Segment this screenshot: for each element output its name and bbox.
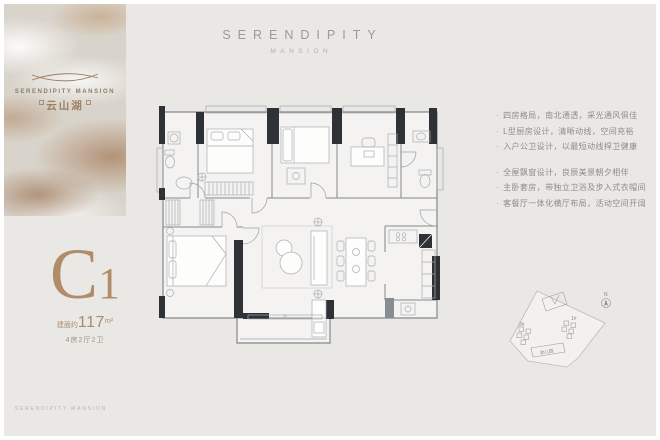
- bullet-icon: ·: [496, 183, 499, 192]
- feature-item: ·客餐厅一体化横厅布局，活动空间开阔: [496, 196, 656, 212]
- unit-code: C1: [14, 238, 156, 310]
- unit-code-main: C: [50, 234, 98, 314]
- bullet-icon: ·: [496, 168, 499, 177]
- seal-mark-icon: [39, 100, 44, 105]
- marble-brand-panel: SERENDIPITY MANSION 云山湖: [4, 4, 126, 216]
- unit-rooms: 4房2厅2卫: [14, 335, 156, 345]
- brand-block: SERENDIPITY MANSION 云山湖: [4, 70, 126, 113]
- feature-item: ·主卧套房，带独立卫浴及步入式衣帽间: [496, 180, 656, 196]
- header-subtitle: MANSION: [168, 48, 430, 55]
- seal-mark-icon: [86, 100, 91, 105]
- unit-area: 建面约117m²: [14, 314, 156, 332]
- feature-text: L型厨房设计，清晰动线，空间充裕: [503, 127, 634, 136]
- brand-title-cn: 云山湖: [4, 98, 126, 113]
- unit-info: C1 建面约117m² 4房2厅2卫: [14, 238, 156, 345]
- feature-item: ·四房格局，南北通透，采光通风俱佳: [496, 108, 656, 124]
- feature-text: 客餐厅一体化横厅布局，活动空间开阔: [503, 199, 646, 208]
- bullet-icon: ·: [496, 142, 499, 151]
- feature-text: 入户公卫设计，以最短动线捍卫健康: [503, 142, 637, 151]
- unit-area-value: 117: [78, 314, 105, 331]
- page-header: SERENDIPITY MANSION: [168, 28, 430, 55]
- feature-group-2: ·全屋飘窗设计，良辰美景朝夕相伴 ·主卧套房，带独立卫浴及步入式衣帽间 ·客餐厅…: [496, 165, 656, 212]
- feature-text: 主卧套房，带独立卫浴及步入式衣帽间: [503, 183, 646, 192]
- bullet-icon: ·: [496, 111, 499, 120]
- building-1-label: 1#: [571, 316, 577, 322]
- north-label: N: [604, 292, 608, 298]
- feature-group-1: ·四房格局，南北通透，采光通风俱佳 ·L型厨房设计，清晰动线，空间充裕 ·入户公…: [496, 108, 656, 155]
- feature-item: ·入户公卫设计，以最短动线捍卫健康: [496, 139, 656, 155]
- bullet-icon: ·: [496, 199, 499, 208]
- flyer-canvas: SERENDIPITY MANSION 云山湖 C1 建面约117m² 4房2厅…: [0, 0, 660, 440]
- footer-brand-text: SERENDIPITY MANSION: [12, 406, 110, 412]
- feature-text: 四房格局，南北通透，采光通风俱佳: [503, 111, 637, 120]
- brand-title: SERENDIPITY MANSION: [4, 89, 126, 95]
- bullet-icon: ·: [496, 127, 499, 136]
- feature-text: 全屋飘窗设计，良辰美景朝夕相伴: [503, 168, 629, 177]
- floor-plan: [155, 98, 453, 352]
- brand-title-cn-text: 云山湖: [46, 100, 84, 112]
- master-bedroom-furniture: [167, 228, 227, 297]
- feature-list: ·四房格局，南北通透，采光通风俱佳 ·L型厨房设计，清晰动线，空间充裕 ·入户公…: [496, 108, 656, 211]
- unit-code-sub: 1: [98, 259, 120, 308]
- site-plan: 3# 1# 幼儿园 N: [500, 283, 650, 383]
- unit-area-unit: m²: [105, 318, 113, 325]
- building-3-label: 3#: [519, 322, 525, 328]
- unit-area-prefix: 建面约: [57, 322, 78, 329]
- feature-item: ·L型厨房设计，清晰动线，空间充裕: [496, 124, 656, 140]
- brand-mark-icon: [29, 70, 101, 85]
- north-arrow-icon: N: [602, 292, 611, 308]
- site-boundary: [510, 291, 605, 367]
- header-title: SERENDIPITY: [168, 28, 430, 42]
- feature-item: ·全屋飘窗设计，良辰美景朝夕相伴: [496, 165, 656, 181]
